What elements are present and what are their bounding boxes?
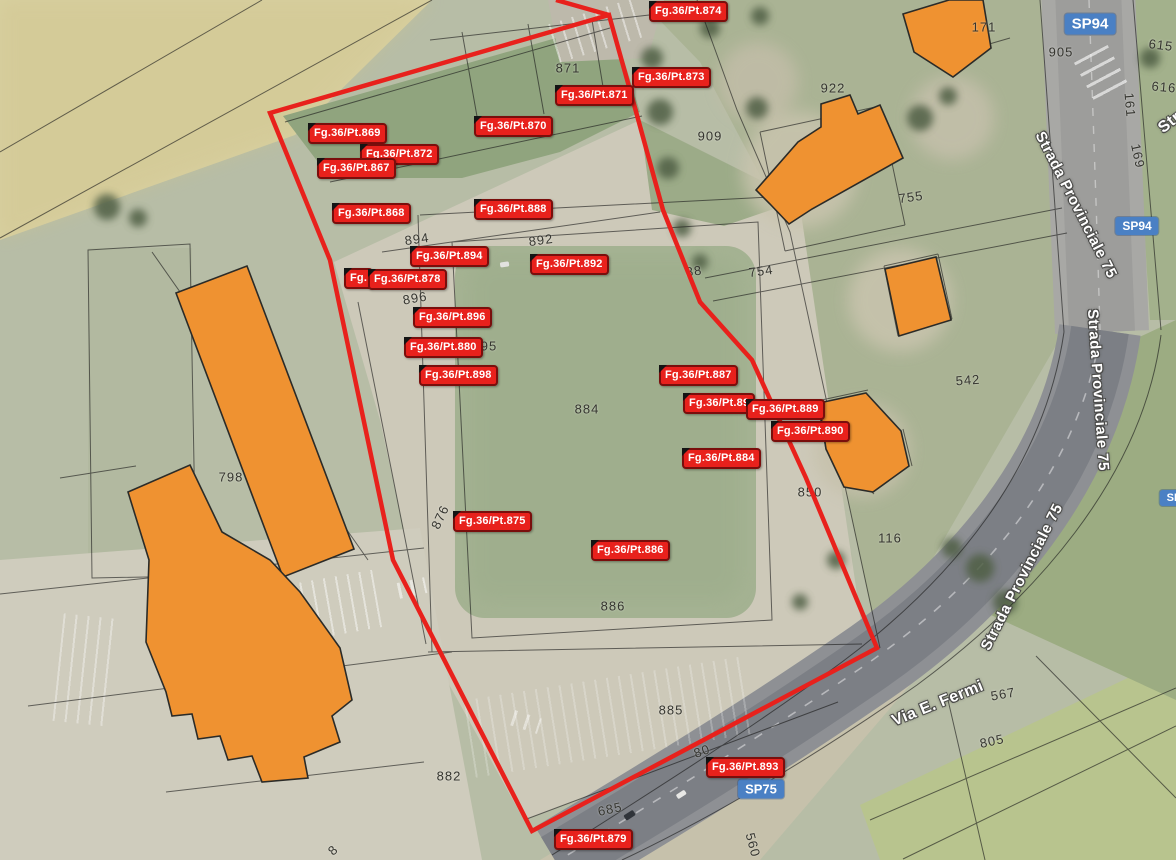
cadastral-label[interactable]: Fg.36/Pt.878 xyxy=(368,269,447,290)
red-boundary-spur xyxy=(556,0,609,15)
cadastral-label[interactable]: Fg.36/Pt.894 xyxy=(410,246,489,267)
cadastral-label[interactable]: Fg.36/Pt.879 xyxy=(554,829,633,850)
cadastral-label[interactable]: Fg.36/Pt.868 xyxy=(332,203,411,224)
cadastral-label[interactable]: Fg.36/Pt.892 xyxy=(530,254,609,275)
cadastral-label[interactable]: Fg.36/Pt.875 xyxy=(453,511,532,532)
cadastral-label[interactable]: Fg.36/Pt.898 xyxy=(419,365,498,386)
cadastral-label[interactable]: Fg.36/Pt.896 xyxy=(413,307,492,328)
cadastral-label[interactable]: Fg.36/Pt.867 xyxy=(317,158,396,179)
cadastral-label[interactable]: Fg.36/Pt.887 xyxy=(659,365,738,386)
cadastral-label[interactable]: Fg.36/Pt.874 xyxy=(649,1,728,22)
cadastral-label[interactable]: Fg.36/Pt.873 xyxy=(632,67,711,88)
cadastral-label[interactable]: Fg.36/Pt.871 xyxy=(555,85,634,106)
cadastral-label[interactable]: Fg.36/Pt.89 xyxy=(683,393,755,414)
cadastral-label[interactable]: Fg.36/Pt.888 xyxy=(474,199,553,220)
cadastral-label[interactable]: Fg.36/Pt.893 xyxy=(706,757,785,778)
map-canvas[interactable]: 8719229091719056156161611697557548889489… xyxy=(0,0,1176,860)
cadastral-label[interactable]: Fg.36/Pt.890 xyxy=(771,421,850,442)
cadastral-label[interactable]: Fg.36/Pt.889 xyxy=(746,399,825,420)
cadastral-label[interactable]: Fg.36/Pt.869 xyxy=(308,123,387,144)
cadastral-label[interactable]: Fg.36/Pt.870 xyxy=(474,116,553,137)
selection-boundary-layer xyxy=(0,0,1176,860)
cadastral-label[interactable]: Fg.36/Pt.886 xyxy=(591,540,670,561)
cadastral-label[interactable]: Fg.36/Pt.884 xyxy=(682,448,761,469)
cadastral-label[interactable]: Fg.36/Pt.880 xyxy=(404,337,483,358)
